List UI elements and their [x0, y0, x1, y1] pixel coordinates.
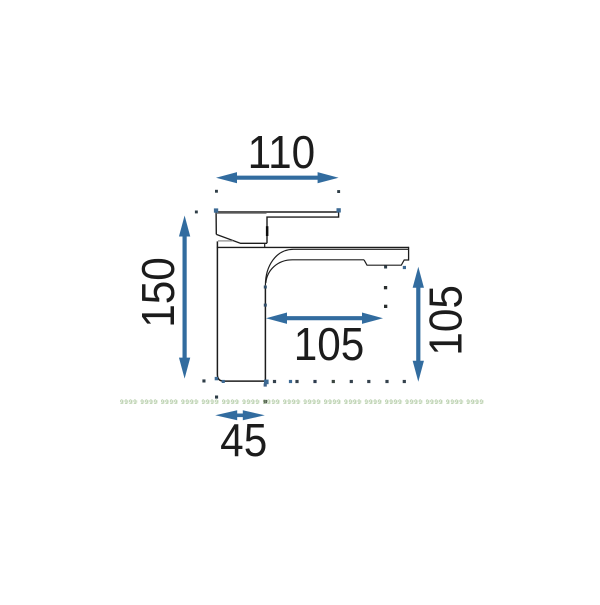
svg-text:105: 105: [421, 285, 472, 356]
svg-text:150: 150: [133, 257, 184, 328]
svg-text:9999 9999 9999 9999 9999 9999: 9999 9999 9999 9999 9999 9999 9999 9999 …: [121, 400, 485, 406]
svg-text:105: 105: [294, 320, 365, 371]
svg-text:110: 110: [248, 128, 315, 179]
svg-text:45: 45: [220, 415, 267, 466]
